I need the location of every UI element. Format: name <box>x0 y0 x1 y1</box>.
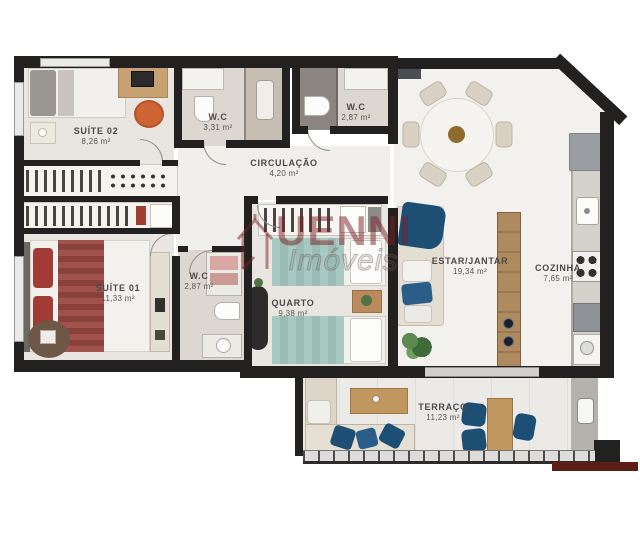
wall-wc2-left <box>292 64 300 134</box>
wc2-sink-counter <box>344 68 388 90</box>
room-label-wc-right: W.C 2,87 m² <box>341 102 370 122</box>
wc2-toilet <box>304 96 330 116</box>
watermark-text: UENNI Imóveis <box>276 212 412 278</box>
room-area: 4,20 m² <box>250 169 318 178</box>
room-name: SUÍTE 01 <box>96 283 141 293</box>
dining-chair <box>496 122 513 148</box>
wall-wc2-bottom-a <box>292 126 308 134</box>
dining-chair <box>403 122 420 148</box>
room-name: TERRAÇO <box>418 402 467 412</box>
room-label-suite-02: SUÍTE 02 8,26 m² <box>74 126 119 146</box>
bar-table <box>487 398 513 458</box>
red-pillow-1 <box>33 248 53 288</box>
room-label-quarto: QUARTO 9,38 m² <box>271 298 314 318</box>
bed-pillow <box>30 70 56 116</box>
room-area: 3,31 m² <box>203 123 232 132</box>
room-name: SUÍTE 02 <box>74 126 119 136</box>
closet-boxes <box>150 204 174 228</box>
dresser-decor-2 <box>155 330 165 340</box>
toilet <box>214 302 240 320</box>
coffee-table-decor <box>372 395 380 403</box>
wall-wc1-bottom-b <box>226 140 290 148</box>
window-suite02-left <box>14 82 24 136</box>
closet-suite01-clothes <box>26 206 132 226</box>
fridge <box>569 133 601 171</box>
window-suite02-top <box>40 58 110 67</box>
room-area: 11,23 m² <box>418 413 467 422</box>
quarto-bed-2-blanket <box>272 316 344 364</box>
wall-closet-mid <box>14 196 180 202</box>
wall-suite01-top <box>14 228 180 234</box>
tv-speaker-2 <box>503 336 514 347</box>
wall-wc2-bottom-b <box>330 126 396 134</box>
room-label-estar: ESTAR/JANTAR 19,34 m² <box>432 256 509 276</box>
wall-wc1-bottom-a <box>174 140 204 148</box>
floor-plan: SUÍTE 02 8,26 m² W.C 3,31 m² W.C 2,87 m²… <box>0 0 640 533</box>
laptop <box>131 71 154 87</box>
room-label-circulacao: CIRCULAÇÃO 4,20 m² <box>250 158 318 178</box>
wall-closet1-top-a <box>14 160 140 166</box>
room-name: CIRCULAÇÃO <box>250 158 318 168</box>
quarto-plant <box>254 278 263 287</box>
maroon-baseboard <box>552 462 638 471</box>
room-area: 2,87 m² <box>184 282 213 291</box>
closet-suite02-shoes <box>108 172 166 190</box>
wall-closet1-top-b <box>162 160 178 166</box>
room-area: 7,65 m² <box>535 274 581 283</box>
room-name: QUARTO <box>271 298 314 308</box>
room-label-cozinha: COZINHA 7,65 m² <box>535 263 581 283</box>
watermark-sub: Imóveis <box>288 244 412 278</box>
closet-red-garment <box>136 206 146 225</box>
wall-wc3-top-a <box>178 246 188 252</box>
wall-estar-left-upper <box>388 56 398 144</box>
room-area: 19,34 m² <box>432 267 509 276</box>
wall-corridor-left-a <box>172 202 180 232</box>
wall-wc1-right <box>282 64 290 148</box>
wall-quarto-bottom <box>240 366 402 378</box>
room-area: 2,87 m² <box>341 113 370 122</box>
quarto-nightstand-plant <box>361 295 372 306</box>
sink-faucet <box>584 208 590 214</box>
wall-corridor-left-b <box>172 256 180 360</box>
table-lamp <box>38 128 47 137</box>
outdoor-pillow-white <box>307 400 331 424</box>
room-label-wc-top: W.C 3,31 m² <box>203 112 232 132</box>
wall-suite01-bottom <box>14 360 246 372</box>
room-name: W.C <box>341 102 370 112</box>
wc1-sink-counter <box>182 68 224 90</box>
wall-terraco-corner <box>594 440 620 462</box>
room-name: W.C <box>203 112 232 122</box>
bed-throw <box>58 70 74 116</box>
sofa-pillow-blue <box>401 281 433 305</box>
tv-panel <box>497 212 521 372</box>
wall-right <box>600 112 614 378</box>
plant <box>398 328 432 360</box>
grill-sink <box>577 398 594 424</box>
room-name: COZINHA <box>535 263 581 273</box>
watermark: UENNI Imóveis <box>234 212 412 278</box>
room-name: ESTAR/JANTAR <box>432 256 509 266</box>
wc-sink-basin <box>216 338 231 353</box>
oven <box>573 303 601 332</box>
dresser-decor-1 <box>155 298 165 312</box>
washer-door <box>580 341 594 355</box>
room-label-wc-suite01: W.C 2,87 m² <box>184 271 213 291</box>
closet-suite02-clothes <box>26 170 102 192</box>
rug-box <box>40 330 56 344</box>
room-name: W.C <box>184 271 213 281</box>
quarto-bed-2-pillows <box>350 318 382 362</box>
wc1-shower-tray <box>256 80 274 120</box>
window-suite01-left <box>14 256 24 342</box>
desk-chair <box>134 100 164 128</box>
room-area: 8,26 m² <box>74 137 119 146</box>
wall-top-right <box>392 58 560 69</box>
room-label-suite-01: SUÍTE 01 11,33 m² <box>96 283 141 303</box>
room-area: 11,33 m² <box>96 294 141 303</box>
tv-speaker-1 <box>503 318 514 329</box>
terrace-sliding-door <box>425 367 539 377</box>
sofa-pillow-white-2 <box>404 305 432 323</box>
dining-centerpiece <box>448 126 465 143</box>
wall-wc1-left <box>174 64 182 148</box>
room-area: 9,38 m² <box>271 309 314 318</box>
room-label-terraco: TERRAÇO 11,23 m² <box>418 402 467 422</box>
wall-terraco-left <box>295 372 303 456</box>
wall-quarto-top-b <box>276 196 388 204</box>
house-icon <box>234 212 276 272</box>
